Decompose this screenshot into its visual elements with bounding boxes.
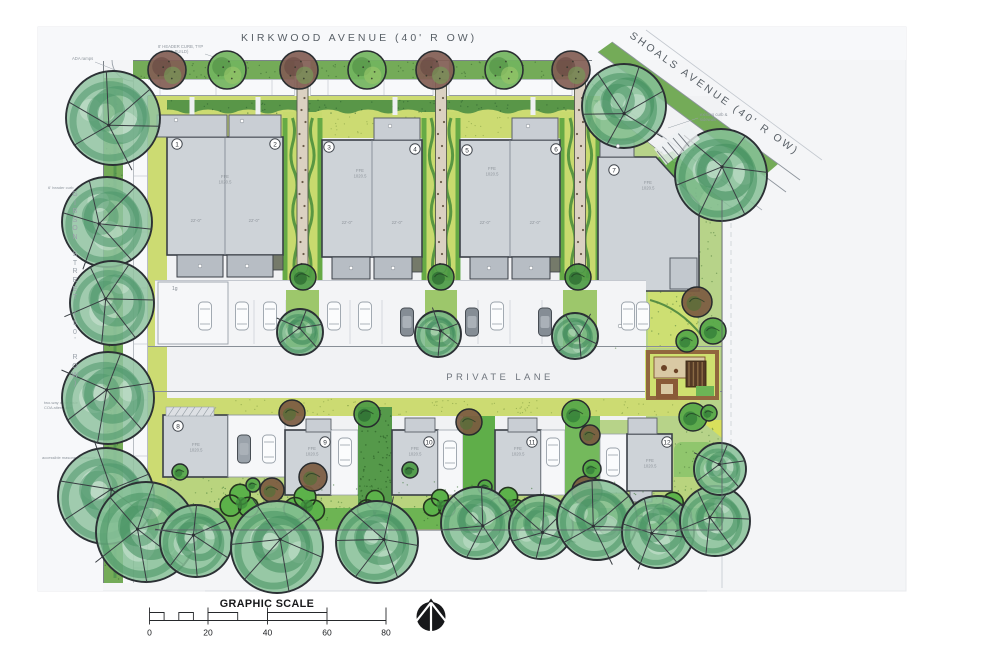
svg-text:N: N xyxy=(72,234,77,241)
svg-text:O: O xyxy=(72,225,78,232)
svg-text:sidewalk: sidewalk xyxy=(700,117,717,122)
svg-text:PRIVATE LANE: PRIVATE LANE xyxy=(446,372,554,383)
svg-text:1020.5: 1020.5 xyxy=(642,186,655,191)
svg-text:5: 5 xyxy=(465,147,469,154)
svg-text:R: R xyxy=(72,354,77,361)
svg-text:FFE: FFE xyxy=(192,442,200,447)
svg-text:E: E xyxy=(73,277,78,284)
svg-text:1g: 1g xyxy=(172,286,178,292)
svg-text:ADA ramps: ADA ramps xyxy=(72,56,93,61)
svg-text:FFE: FFE xyxy=(488,166,496,171)
svg-text:1020.5: 1020.5 xyxy=(644,464,657,469)
svg-text:22'-0": 22'-0" xyxy=(191,218,202,223)
svg-text:0: 0 xyxy=(73,329,77,336)
svg-text:): ) xyxy=(74,380,76,387)
svg-text:E: E xyxy=(73,286,78,293)
svg-text:22'-0": 22'-0" xyxy=(530,220,541,225)
svg-text:B: B xyxy=(73,208,78,215)
svg-text:40: 40 xyxy=(263,628,273,638)
svg-text:R: R xyxy=(72,268,77,275)
svg-text:8: 8 xyxy=(176,423,180,430)
svg-text:FFE: FFE xyxy=(308,446,316,451)
svg-text:22'-0": 22'-0" xyxy=(249,218,260,223)
svg-text:0: 0 xyxy=(147,628,152,638)
svg-text:1020.5: 1020.5 xyxy=(486,172,499,177)
svg-text:60: 60 xyxy=(322,628,332,638)
svg-text:20: 20 xyxy=(203,628,213,638)
svg-text:G: G xyxy=(72,191,77,198)
svg-text:2: 2 xyxy=(273,141,277,148)
svg-text:10: 10 xyxy=(425,439,433,446)
svg-text:T: T xyxy=(73,260,78,267)
svg-text:GRAPHIC SCALE: GRAPHIC SCALE xyxy=(220,598,315,610)
svg-text:FFE: FFE xyxy=(514,446,522,451)
svg-text:80: 80 xyxy=(381,628,391,638)
svg-text:FFE: FFE xyxy=(644,180,652,185)
svg-text:1: 1 xyxy=(175,141,179,148)
svg-text:12: 12 xyxy=(663,439,671,446)
svg-text:3: 3 xyxy=(327,144,331,151)
svg-text:FFE: FFE xyxy=(221,174,229,179)
svg-text:5: 5 xyxy=(73,320,77,327)
svg-text:FFE: FFE xyxy=(356,168,364,173)
svg-text:1020.5: 1020.5 xyxy=(512,452,525,457)
svg-text:6: 6 xyxy=(554,146,558,153)
svg-text:S: S xyxy=(73,251,78,258)
svg-text:1020.5: 1020.5 xyxy=(190,448,203,453)
svg-text:KIRKWOOD AVENUE (40' R OW): KIRKWOOD AVENUE (40' R OW) xyxy=(241,32,477,44)
svg-text:I: I xyxy=(74,200,76,207)
svg-text:': ' xyxy=(74,337,75,344)
svg-text:O: O xyxy=(72,363,78,370)
svg-text:11: 11 xyxy=(529,439,536,446)
svg-text:1020.5: 1020.5 xyxy=(306,452,319,457)
svg-text:1020.5: 1020.5 xyxy=(354,174,367,179)
svg-text:S: S xyxy=(73,217,78,224)
svg-text:9: 9 xyxy=(323,439,327,446)
svg-text:7: 7 xyxy=(612,167,616,174)
svg-text:4: 4 xyxy=(413,146,417,153)
svg-text:22'-0": 22'-0" xyxy=(342,220,353,225)
svg-text:1020.5: 1020.5 xyxy=(409,452,422,457)
svg-text:22'-0": 22'-0" xyxy=(480,220,491,225)
svg-text:1020.5: 1020.5 xyxy=(219,180,232,185)
svg-text:22'-0": 22'-0" xyxy=(392,220,403,225)
svg-text:W: W xyxy=(72,372,79,379)
svg-text:T: T xyxy=(73,294,78,301)
svg-text:6' header curb: 6' header curb xyxy=(48,185,74,190)
svg-text:FFE: FFE xyxy=(411,446,419,451)
svg-text:FFE: FFE xyxy=(646,458,654,463)
